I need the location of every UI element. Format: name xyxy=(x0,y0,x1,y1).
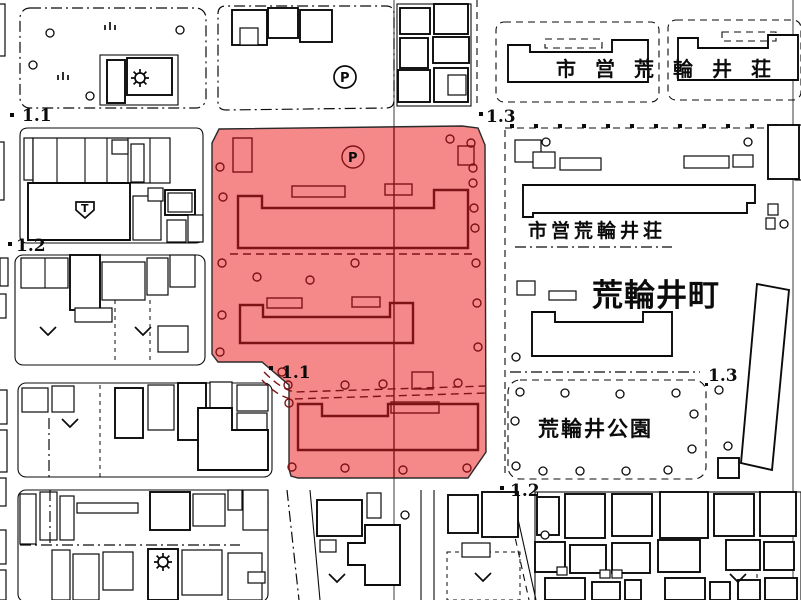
block-topmiddle-buildings xyxy=(232,8,332,45)
city-plan-map: T xyxy=(0,0,801,600)
telephone-letter: T xyxy=(81,202,89,215)
survey-marker-1-2-bottom: 1.2 xyxy=(510,481,540,501)
block-bottommiddle-buildings xyxy=(317,492,520,600)
parking-icon: P xyxy=(334,66,356,88)
survey-marker-1-2: 1.2 xyxy=(16,236,46,256)
embankment-ticks xyxy=(510,124,778,128)
block-t-buildings: T xyxy=(24,138,203,242)
housing-mid-label: 市営荒輪井荘 xyxy=(528,219,666,242)
park-label: 荒輪井公園 xyxy=(538,416,653,441)
parking-letter: P xyxy=(340,71,350,86)
block-left4-buildings xyxy=(22,382,268,477)
field-check-icon xyxy=(329,574,345,582)
town-label: 荒輪井町 xyxy=(592,278,720,314)
survey-marker-1-1: 1.1 xyxy=(22,106,52,126)
housing-top-label: 市営荒輪井荘 xyxy=(556,57,790,81)
field-check-icon xyxy=(62,419,78,427)
field-check-icon xyxy=(475,573,491,581)
map-viewport: T xyxy=(0,0,801,600)
survey-marker-1-3-right: 1.3 xyxy=(708,366,738,386)
grass-icon xyxy=(58,72,68,80)
survey-marker-1-3: 1.3 xyxy=(486,107,516,127)
field-check-icon xyxy=(40,327,56,335)
block-left3-buildings xyxy=(21,255,195,363)
block-bottomleft-buildings xyxy=(20,490,268,600)
block-topright-cluster xyxy=(398,4,469,102)
block-topleft-buildings xyxy=(58,22,178,105)
survey-marker-1-1-center: 1.1 xyxy=(281,363,311,383)
grass-icon xyxy=(105,22,115,30)
field-check-icon xyxy=(135,327,151,335)
parking-letter-highlight: P xyxy=(348,151,358,166)
block-bottomright-buildings xyxy=(535,492,797,600)
